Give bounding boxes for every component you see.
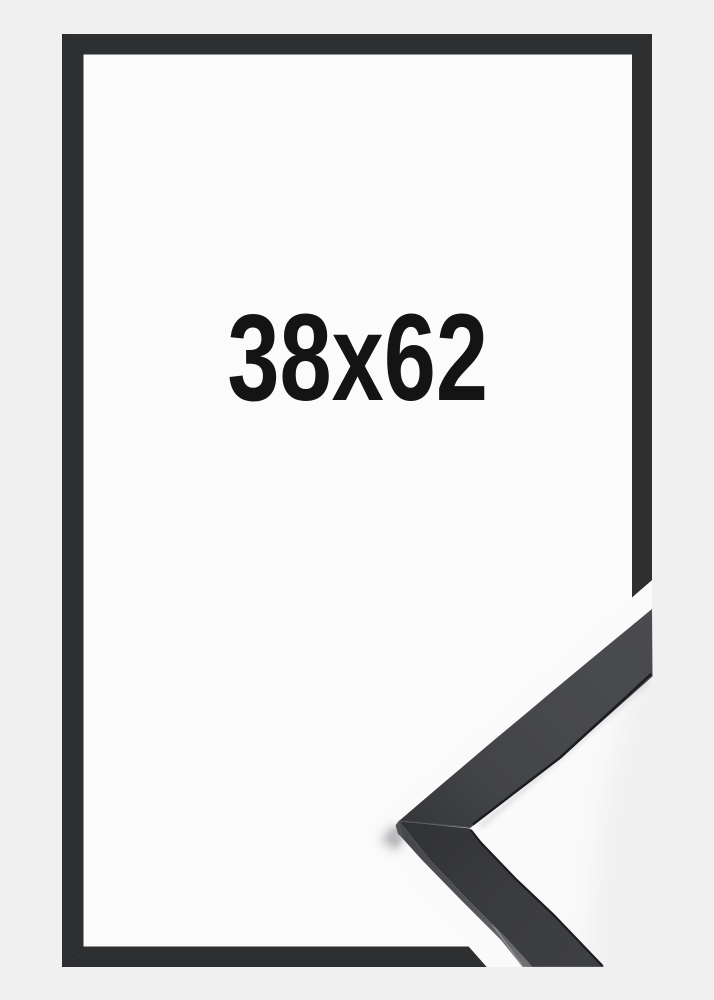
svg-text:38x62: 38x62 — [227, 290, 488, 427]
